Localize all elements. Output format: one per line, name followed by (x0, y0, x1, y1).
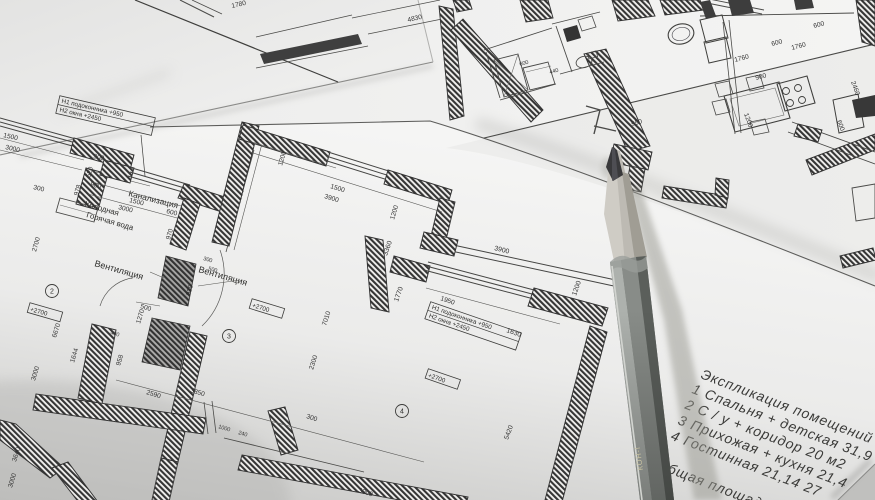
svg-text:2: 2 (50, 289, 54, 296)
svg-text:4: 4 (400, 409, 404, 416)
svg-text:3: 3 (227, 334, 231, 341)
